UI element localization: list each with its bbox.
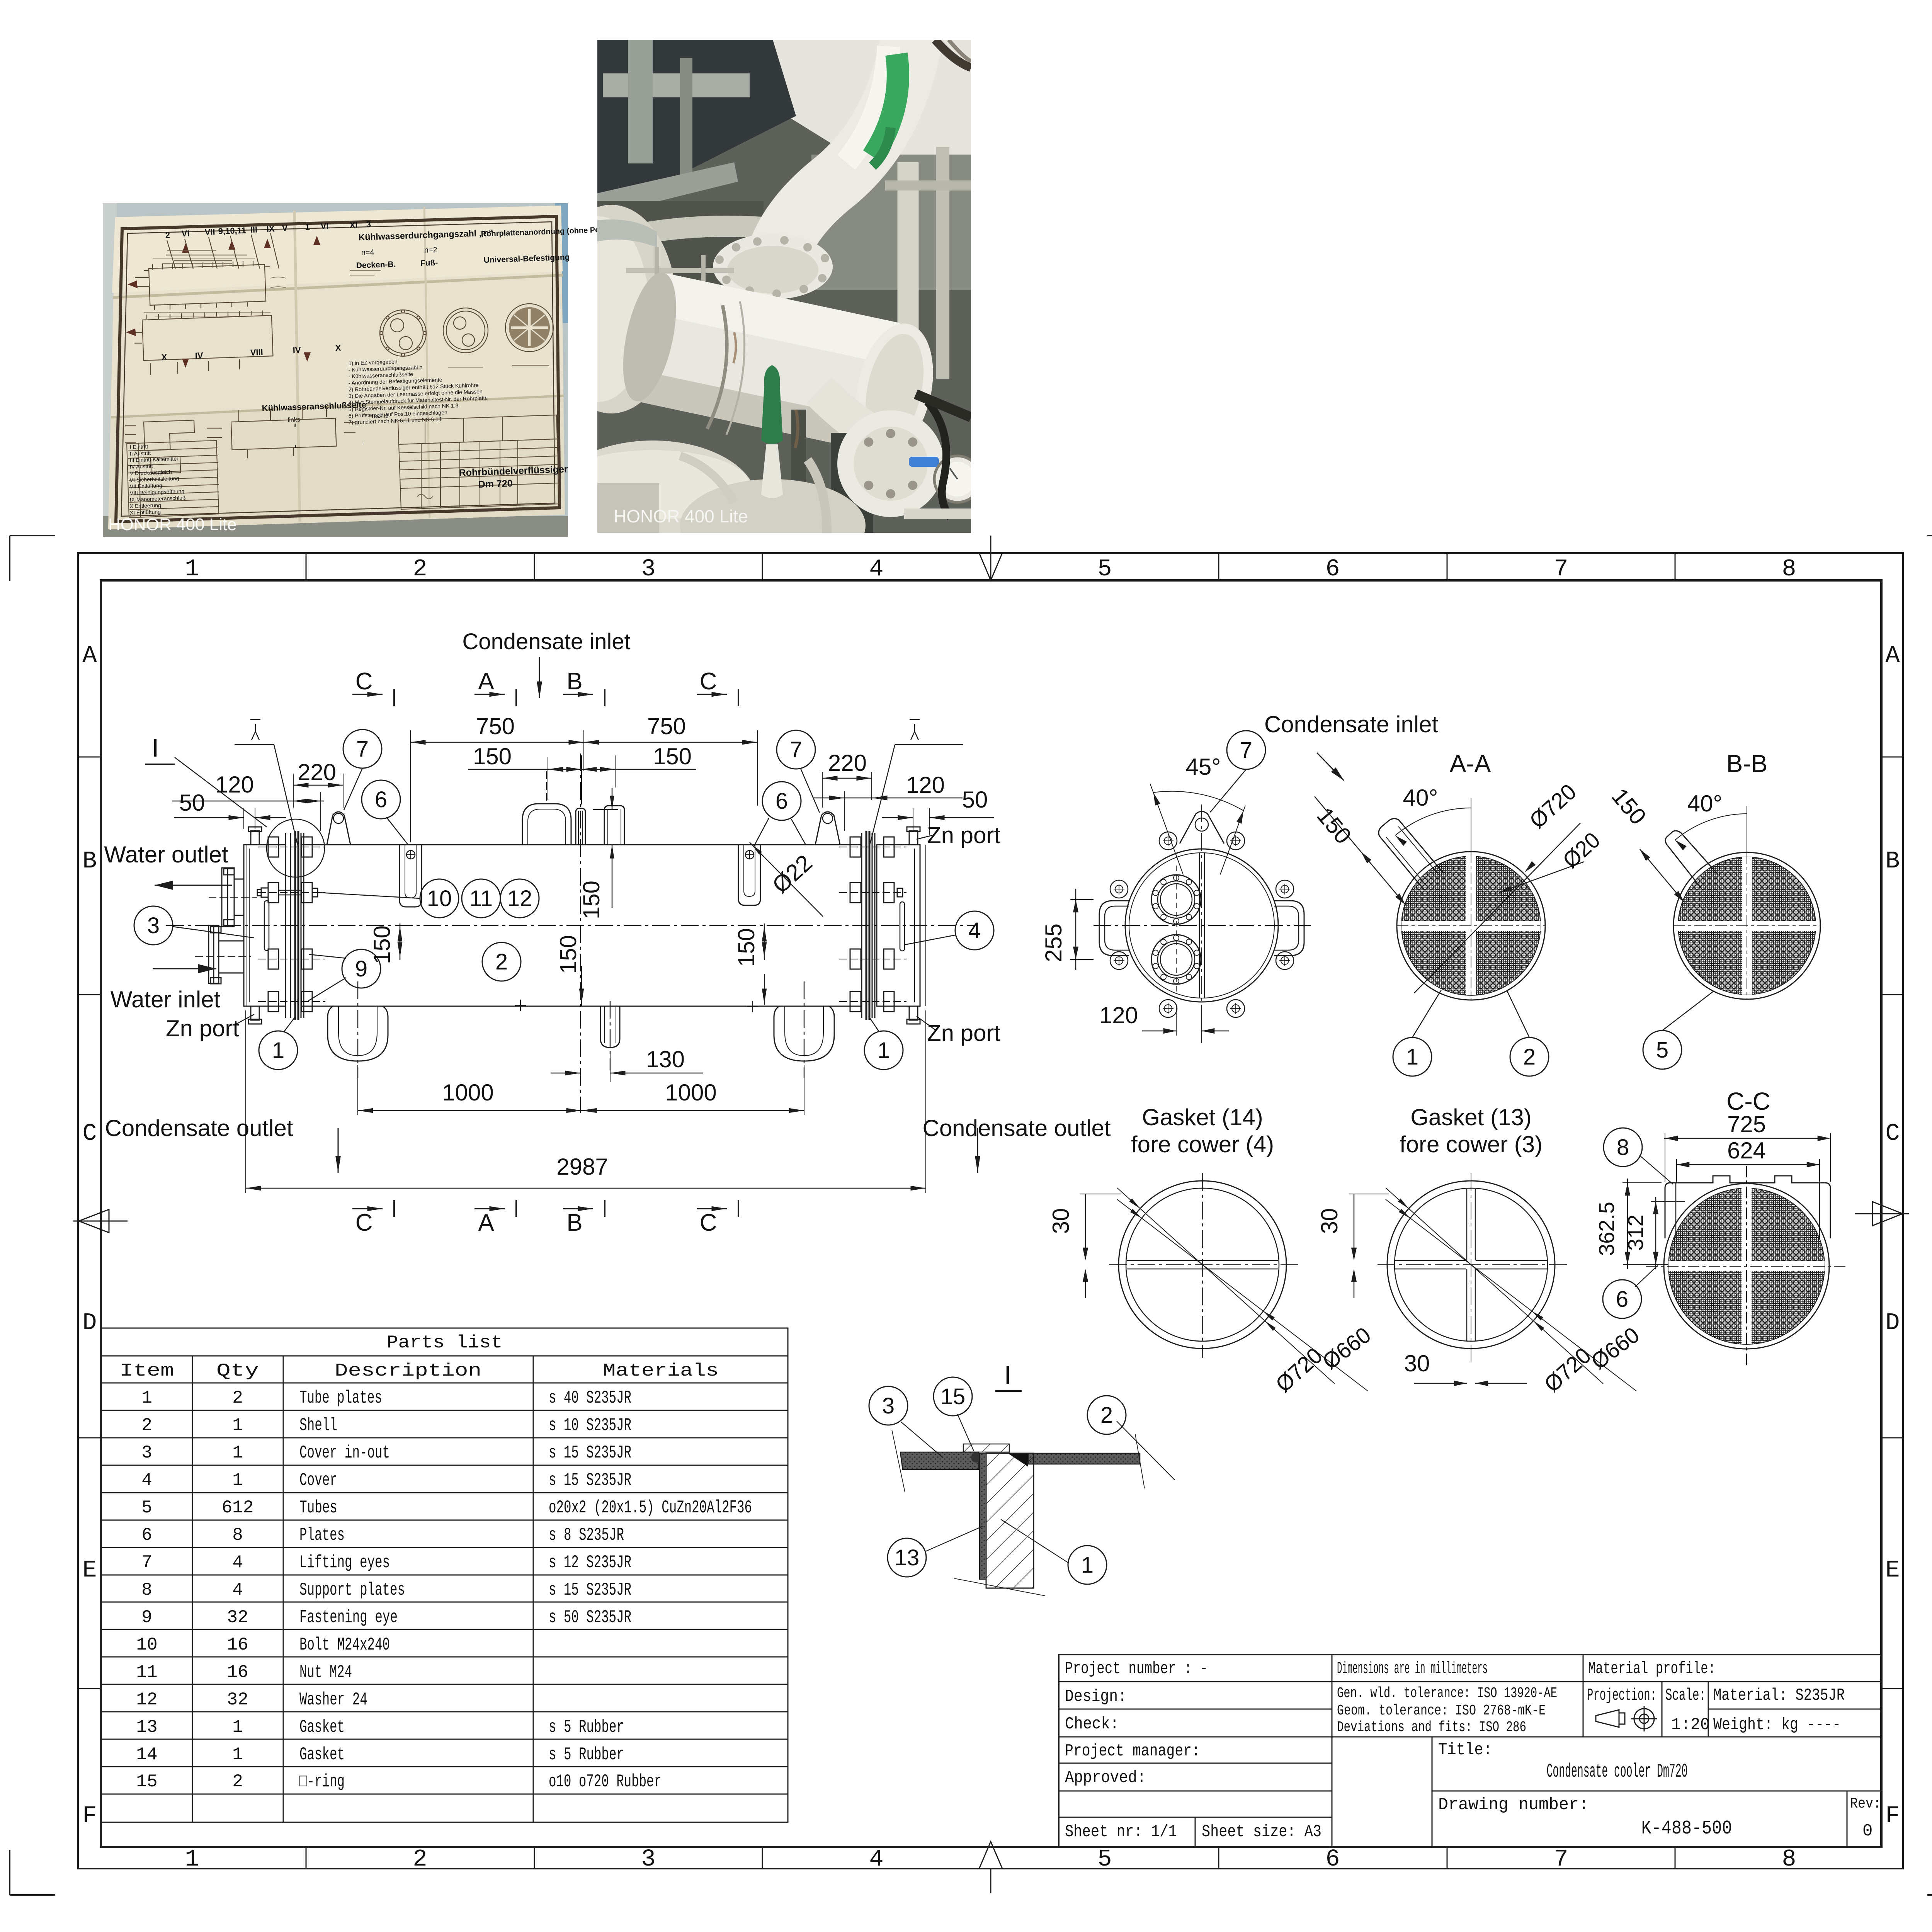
svg-text:750: 750 xyxy=(647,713,686,739)
svg-text:Condensate inlet: Condensate inlet xyxy=(462,629,630,654)
svg-text:16: 16 xyxy=(227,1635,248,1655)
svg-text:5: 5 xyxy=(1656,1037,1668,1063)
svg-text:Parts list: Parts list xyxy=(387,1333,503,1353)
svg-text:1: 1 xyxy=(232,1443,243,1463)
svg-text:VIII: VIII xyxy=(250,347,263,357)
svg-text:3: 3 xyxy=(366,219,371,229)
svg-text:Scale:: Scale: xyxy=(1665,1686,1706,1705)
svg-text:o10 o720 Rubber: o10 o720 Rubber xyxy=(549,1772,662,1792)
svg-text:1:20: 1:20 xyxy=(1671,1715,1710,1735)
svg-text:362.5: 362.5 xyxy=(1594,1202,1619,1256)
svg-text:1: 1 xyxy=(272,1038,284,1063)
svg-text:Drawing number:: Drawing number: xyxy=(1438,1795,1589,1815)
svg-text:Dimensions are in millimeters: Dimensions are in millimeters xyxy=(1337,1659,1488,1679)
svg-text:4: 4 xyxy=(869,1845,883,1873)
svg-text:B: B xyxy=(1885,847,1900,875)
svg-text:s 40 S235JR: s 40 S235JR xyxy=(549,1388,631,1408)
svg-text:12: 12 xyxy=(136,1690,157,1710)
svg-text:s 50 S235JR: s 50 S235JR xyxy=(549,1607,631,1628)
svg-text:3: 3 xyxy=(882,1393,895,1418)
svg-text:Zn port: Zn port xyxy=(166,1015,239,1041)
svg-text:30: 30 xyxy=(1404,1350,1430,1376)
svg-text:150: 150 xyxy=(653,743,692,769)
svg-text:X Entleerung: X Entleerung xyxy=(130,502,161,509)
svg-text:4: 4 xyxy=(968,918,981,943)
svg-text:3: 3 xyxy=(641,555,655,583)
svg-text:1: 1 xyxy=(185,1845,199,1873)
svg-text:2: 2 xyxy=(141,1415,152,1435)
svg-text:8: 8 xyxy=(1617,1135,1629,1160)
svg-text:□-ring: □-ring xyxy=(299,1772,345,1792)
svg-text:3: 3 xyxy=(147,913,160,938)
svg-text:624: 624 xyxy=(1727,1138,1766,1163)
svg-text:1: 1 xyxy=(232,1745,243,1765)
svg-text:F: F xyxy=(82,1802,97,1830)
svg-text:A: A xyxy=(82,642,97,669)
svg-text:312: 312 xyxy=(1623,1214,1648,1250)
svg-text:150: 150 xyxy=(473,743,512,769)
svg-text:2: 2 xyxy=(413,1845,427,1873)
svg-text:2: 2 xyxy=(1523,1044,1536,1070)
svg-text:2: 2 xyxy=(165,230,170,240)
svg-text:II Austritt: II Austritt xyxy=(130,450,151,457)
svg-text:30: 30 xyxy=(1048,1208,1074,1234)
svg-text:3: 3 xyxy=(141,1443,152,1463)
svg-text:C: C xyxy=(700,668,717,695)
svg-text:IV: IV xyxy=(195,350,203,361)
svg-text:Approved:: Approved: xyxy=(1065,1768,1146,1787)
svg-text:130: 130 xyxy=(646,1046,685,1072)
svg-text:8: 8 xyxy=(141,1580,152,1600)
svg-text:Deviations and fits: ISO 286: Deviations and fits: ISO 286 xyxy=(1337,1719,1526,1736)
svg-text:Description: Description xyxy=(335,1361,481,1381)
svg-text:Project number : -: Project number : - xyxy=(1065,1659,1208,1679)
svg-text:1: 1 xyxy=(1081,1553,1094,1578)
svg-text:7: 7 xyxy=(1554,555,1568,583)
svg-text:3: 3 xyxy=(641,1845,655,1873)
svg-text:1: 1 xyxy=(185,555,199,583)
svg-text:1: 1 xyxy=(232,1717,243,1737)
svg-text:Ø660: Ø660 xyxy=(1318,1322,1376,1374)
svg-text:2: 2 xyxy=(232,1772,243,1792)
svg-text:VI: VI xyxy=(320,221,329,231)
svg-text:Lifting eyes: Lifting eyes xyxy=(299,1553,390,1573)
svg-text:fore cower (3): fore cower (3) xyxy=(1400,1131,1543,1157)
svg-text:B: B xyxy=(566,668,582,695)
svg-text:I Eintritt: I Eintritt xyxy=(130,443,148,450)
svg-text:Gasket (13): Gasket (13) xyxy=(1410,1104,1531,1130)
svg-text:II: II xyxy=(294,423,296,428)
svg-text:255: 255 xyxy=(1041,923,1066,962)
svg-text:13: 13 xyxy=(895,1545,920,1570)
svg-text:Material: S235JR: Material: S235JR xyxy=(1713,1686,1845,1705)
svg-text:Project manager:: Project manager: xyxy=(1065,1742,1200,1761)
svg-text:10: 10 xyxy=(427,886,452,911)
svg-text:1: 1 xyxy=(305,222,310,232)
svg-text:Ø660: Ø660 xyxy=(1587,1322,1644,1374)
svg-text:150: 150 xyxy=(369,925,395,964)
svg-text:Projection:: Projection: xyxy=(1587,1686,1656,1705)
svg-text:Gen. wld. tolerance: ISO 13: Gen. wld. tolerance: ISO 13920-AE xyxy=(1337,1685,1557,1702)
svg-text:Ø22: Ø22 xyxy=(767,850,817,898)
svg-text:1: 1 xyxy=(141,1388,152,1408)
svg-text:VII Entlüftung: VII Entlüftung xyxy=(130,482,163,490)
svg-text:2: 2 xyxy=(1100,1403,1113,1428)
svg-text:220: 220 xyxy=(298,759,336,785)
svg-text:HONOR 400 Lite: HONOR 400 Lite xyxy=(614,506,748,526)
svg-text:1000: 1000 xyxy=(665,1080,716,1105)
svg-text:2: 2 xyxy=(495,949,508,975)
svg-text:1: 1 xyxy=(878,1038,890,1063)
svg-text:1000: 1000 xyxy=(442,1080,493,1105)
svg-text:Gasket (14): Gasket (14) xyxy=(1142,1104,1263,1130)
svg-text:E: E xyxy=(82,1556,97,1584)
svg-text:7: 7 xyxy=(141,1553,152,1573)
svg-text:5: 5 xyxy=(1097,1845,1112,1873)
svg-text:Check:: Check: xyxy=(1065,1714,1119,1734)
svg-text:Ø20: Ø20 xyxy=(1558,827,1605,873)
svg-text:Ø720: Ø720 xyxy=(1271,1343,1327,1397)
svg-text:fore cower (4): fore cower (4) xyxy=(1131,1131,1274,1157)
svg-text:6: 6 xyxy=(1325,555,1340,583)
svg-text:HONOR 400 Lite: HONOR 400 Lite xyxy=(108,515,237,534)
svg-text:32: 32 xyxy=(227,1690,248,1710)
svg-text:Water inlet: Water inlet xyxy=(111,986,221,1012)
svg-text:9: 9 xyxy=(355,956,367,981)
svg-text:C: C xyxy=(82,1120,97,1147)
svg-text:Plates: Plates xyxy=(299,1525,345,1545)
svg-text:C: C xyxy=(700,1209,717,1236)
svg-text:s 15 S235JR: s 15 S235JR xyxy=(549,1470,631,1490)
svg-text:s 12 S235JR: s 12 S235JR xyxy=(549,1553,631,1573)
svg-text:16: 16 xyxy=(227,1662,248,1682)
svg-text:Title:: Title: xyxy=(1438,1740,1492,1760)
svg-text:Zn port: Zn port xyxy=(927,1020,1000,1046)
svg-text:32: 32 xyxy=(227,1607,248,1628)
svg-text:8: 8 xyxy=(1782,555,1796,583)
svg-text:4: 4 xyxy=(869,555,883,583)
svg-text:V: V xyxy=(282,223,288,233)
svg-text:Condensate inlet: Condensate inlet xyxy=(1264,711,1439,737)
svg-text:1: 1 xyxy=(232,1470,243,1490)
svg-text:I: I xyxy=(152,733,159,762)
svg-text:Fuß-: Fuß- xyxy=(420,258,438,268)
svg-text:B-B: B-B xyxy=(1726,750,1768,777)
svg-text:Design:: Design: xyxy=(1065,1687,1127,1706)
svg-text:8: 8 xyxy=(232,1525,243,1545)
svg-text:6: 6 xyxy=(375,787,387,812)
svg-text:14: 14 xyxy=(136,1745,157,1765)
svg-text:A: A xyxy=(478,1209,494,1236)
svg-text:C: C xyxy=(355,1209,373,1236)
svg-text:6: 6 xyxy=(141,1525,152,1545)
svg-text:n=2: n=2 xyxy=(424,246,437,255)
svg-text:7: 7 xyxy=(1554,1845,1568,1873)
svg-text:s 5 Rubber: s 5 Rubber xyxy=(549,1745,624,1765)
svg-text:150: 150 xyxy=(555,935,581,974)
svg-text:Cover: Cover xyxy=(299,1470,337,1490)
svg-text:Gasket: Gasket xyxy=(299,1717,345,1737)
svg-text:B: B xyxy=(82,847,97,875)
svg-text:X: X xyxy=(161,352,167,362)
svg-text:11: 11 xyxy=(136,1662,157,1682)
svg-text:A: A xyxy=(478,668,494,695)
svg-text:612: 612 xyxy=(222,1498,254,1518)
svg-text:9: 9 xyxy=(141,1607,152,1628)
svg-text:0: 0 xyxy=(1862,1821,1872,1841)
svg-text:1: 1 xyxy=(232,1415,243,1435)
svg-text:220: 220 xyxy=(828,750,867,776)
svg-text:Tubes: Tubes xyxy=(299,1498,337,1518)
svg-text:150: 150 xyxy=(1312,803,1357,849)
svg-text:XI: XI xyxy=(349,220,358,230)
svg-text:Shell: Shell xyxy=(299,1415,337,1435)
svg-text:Rev:: Rev: xyxy=(1850,1796,1881,1812)
svg-text:F: F xyxy=(1885,1802,1900,1830)
svg-text:5: 5 xyxy=(1097,555,1112,583)
svg-text:150: 150 xyxy=(578,881,604,919)
svg-text:s 5 Rubber: s 5 Rubber xyxy=(549,1717,624,1737)
svg-text:s 15 S235JR: s 15 S235JR xyxy=(549,1443,631,1463)
svg-text:150: 150 xyxy=(1607,783,1651,830)
svg-text:Weight: kg ----: Weight: kg ---- xyxy=(1713,1715,1841,1735)
svg-text:Geom. tolerance: ISO 2768-m: Geom. tolerance: ISO 2768-mK-E xyxy=(1337,1702,1546,1719)
svg-text:30: 30 xyxy=(1316,1208,1342,1234)
svg-text:6: 6 xyxy=(776,789,788,814)
svg-text:Zn port: Zn port xyxy=(927,822,1000,848)
svg-text:13: 13 xyxy=(136,1717,157,1737)
svg-text:Item: Item xyxy=(120,1361,174,1381)
svg-text:A-A: A-A xyxy=(1450,750,1491,777)
svg-text:D: D xyxy=(82,1309,97,1337)
svg-text:Condensate cooler Dm720: Condensate cooler Dm720 xyxy=(1547,1761,1688,1783)
svg-text:IV: IV xyxy=(293,345,301,355)
svg-text:Sheet size: A3: Sheet size: A3 xyxy=(1202,1822,1321,1842)
svg-text:Materials: Materials xyxy=(603,1361,719,1381)
svg-text:50: 50 xyxy=(179,790,205,816)
svg-text:120: 120 xyxy=(215,772,254,798)
svg-text:2: 2 xyxy=(232,1388,243,1408)
svg-text:VII: VII xyxy=(204,227,215,237)
svg-text:Nut M24: Nut M24 xyxy=(299,1662,352,1682)
svg-text:Condensate outlet: Condensate outlet xyxy=(105,1115,293,1141)
svg-text:IV Austritt: IV Austritt xyxy=(130,463,153,470)
svg-text:2: 2 xyxy=(413,555,427,583)
svg-text:D: D xyxy=(1885,1309,1900,1337)
svg-text:II: II xyxy=(363,420,366,425)
svg-text:X: X xyxy=(335,343,341,353)
svg-text:Ø720: Ø720 xyxy=(1525,779,1581,833)
svg-text:Decken-B.: Decken-B. xyxy=(356,260,396,270)
svg-text:I: I xyxy=(1004,1361,1012,1390)
svg-text:C: C xyxy=(355,668,373,695)
svg-text:o20x2 (20x1.5) CuZn20Al2F36: o20x2 (20x1.5) CuZn20Al2F36 xyxy=(549,1498,752,1518)
svg-text:4: 4 xyxy=(232,1580,243,1600)
svg-text:4: 4 xyxy=(232,1553,243,1573)
svg-text:Ø720: Ø720 xyxy=(1539,1343,1596,1397)
svg-text:7: 7 xyxy=(356,736,369,762)
svg-text:Material profile:: Material profile: xyxy=(1588,1659,1716,1679)
svg-text:6: 6 xyxy=(1616,1287,1628,1312)
svg-text:Condensate outlet: Condensate outlet xyxy=(922,1115,1111,1141)
svg-text:Sheet nr: 1/1: Sheet nr: 1/1 xyxy=(1065,1822,1177,1842)
svg-text:15: 15 xyxy=(136,1772,157,1792)
svg-text:s 8 S235JR: s 8 S235JR xyxy=(549,1525,624,1545)
svg-text:Support plates: Support plates xyxy=(299,1580,405,1600)
svg-text:50: 50 xyxy=(962,787,988,813)
svg-text:10: 10 xyxy=(136,1635,157,1655)
svg-text:E: E xyxy=(1885,1556,1900,1584)
svg-text:5: 5 xyxy=(141,1498,152,1518)
svg-text:40°: 40° xyxy=(1687,791,1723,816)
svg-text:750: 750 xyxy=(476,713,515,739)
svg-text:K-488-500: K-488-500 xyxy=(1641,1818,1732,1840)
svg-text:12: 12 xyxy=(507,886,532,911)
svg-text:Washer 24: Washer 24 xyxy=(299,1690,367,1710)
svg-text:Water outlet: Water outlet xyxy=(104,842,228,867)
svg-text:Gasket: Gasket xyxy=(299,1745,345,1765)
svg-text:40°: 40° xyxy=(1403,785,1438,811)
svg-text:VI: VI xyxy=(181,228,190,238)
svg-text:1: 1 xyxy=(1406,1044,1418,1070)
svg-text:4: 4 xyxy=(141,1470,152,1490)
svg-text:Cover in-out: Cover in-out xyxy=(299,1443,390,1463)
svg-text:45°: 45° xyxy=(1186,754,1221,780)
svg-text:Dm 720: Dm 720 xyxy=(478,478,513,490)
svg-text:7: 7 xyxy=(790,737,802,762)
svg-text:III: III xyxy=(250,224,257,235)
svg-text:15: 15 xyxy=(940,1384,966,1409)
svg-text:7: 7 xyxy=(1240,738,1252,763)
svg-text:2987: 2987 xyxy=(556,1154,608,1180)
svg-text:Tube plates: Tube plates xyxy=(299,1388,382,1408)
svg-text:A: A xyxy=(1885,642,1900,669)
svg-text:9,10,11: 9,10,11 xyxy=(218,225,246,236)
svg-text:Fastening eye: Fastening eye xyxy=(299,1607,398,1628)
svg-text:IX: IX xyxy=(266,224,275,234)
svg-text:6: 6 xyxy=(1325,1845,1340,1873)
svg-text:120: 120 xyxy=(906,772,945,798)
svg-text:11: 11 xyxy=(469,886,493,911)
svg-text:C: C xyxy=(1885,1120,1900,1147)
svg-text:150: 150 xyxy=(733,928,759,967)
svg-text:725: 725 xyxy=(1727,1111,1766,1137)
svg-text:Bolt M24x240: Bolt M24x240 xyxy=(299,1635,390,1655)
svg-text:I: I xyxy=(295,444,296,449)
svg-text:120: 120 xyxy=(1099,1002,1138,1028)
svg-text:8: 8 xyxy=(1782,1845,1796,1873)
svg-text:s 15 S235JR: s 15 S235JR xyxy=(549,1580,631,1600)
svg-text:s 10 S235JR: s 10 S235JR xyxy=(549,1415,631,1435)
svg-text:B: B xyxy=(566,1209,582,1236)
svg-text:I: I xyxy=(362,441,364,446)
svg-text:Qty: Qty xyxy=(216,1361,259,1381)
svg-text:n=4: n=4 xyxy=(361,248,374,257)
